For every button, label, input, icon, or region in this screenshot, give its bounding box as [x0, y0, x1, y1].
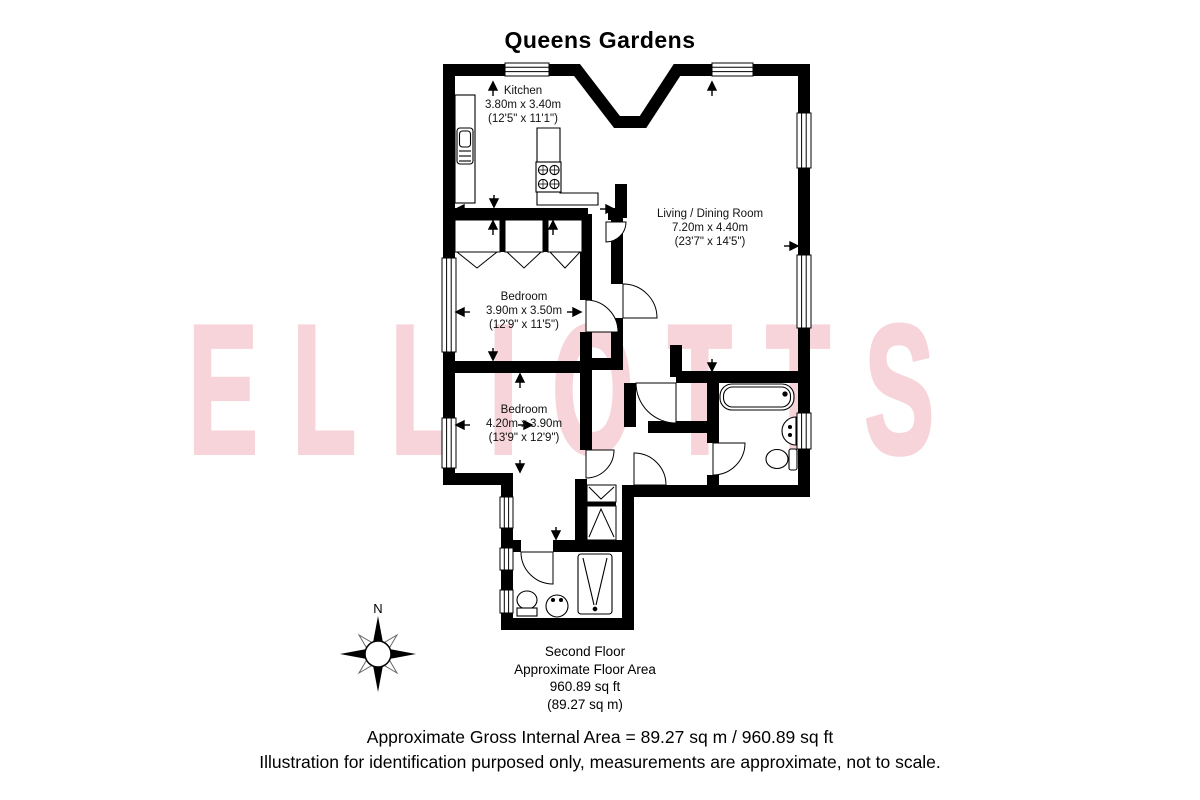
outer-wall	[449, 70, 804, 624]
floor-name: Second Floor	[465, 643, 705, 661]
cupboard-upper	[587, 485, 616, 502]
door-shower-room	[521, 552, 553, 584]
shower-toilet-base	[517, 608, 537, 616]
page-title: Queens Gardens	[0, 27, 1200, 54]
closet-stub-1	[500, 220, 505, 252]
floor-area-ft: 960.89 sq ft	[465, 678, 705, 696]
shower-drain	[593, 607, 597, 611]
shower-basin-tap	[560, 599, 563, 602]
floor-area-m: (89.27 sq m)	[465, 696, 705, 714]
closet-stub-2	[543, 220, 548, 252]
room-size-metric: 3.80m x 3.40m	[448, 98, 598, 112]
room-size-imperial: (23'7" x 14'5")	[620, 235, 800, 249]
compass-north-label: N	[362, 601, 394, 616]
basin-tap	[789, 426, 792, 429]
room-size-metric: 3.90m x 3.50m	[449, 304, 599, 318]
floorplan-page: ELLIOTTS	[0, 0, 1200, 800]
arrow-down	[489, 348, 497, 360]
door-entry-hall	[636, 383, 676, 423]
footer-disclaimer: Illustration for identification purposed…	[0, 752, 1200, 773]
room-size-imperial: (12'9" x 11'5")	[449, 318, 599, 332]
window-lobby-left-1	[500, 497, 513, 528]
door-bedroom2	[586, 450, 614, 478]
room-size-imperial: (13'9" x 12'9")	[449, 431, 599, 445]
window-living-right-1	[797, 113, 811, 168]
arrow-down	[490, 195, 498, 207]
window-kitchen-top	[505, 63, 549, 76]
kitchen-sink-bowl	[460, 131, 471, 147]
bedroom1-label: Bedroom 3.90m x 3.50m (12'9" x 11'5")	[449, 290, 599, 332]
door-bathroom	[713, 443, 745, 475]
room-name: Living / Dining Room	[620, 207, 800, 221]
window-living-top	[712, 63, 753, 76]
room-size-metric: 4.20m x 3.90m	[449, 417, 599, 431]
door-living	[623, 284, 657, 318]
shower-basin	[546, 595, 568, 617]
arrow-down	[708, 359, 716, 371]
closet-door-mark-2	[507, 252, 541, 268]
bathtub-tap	[783, 392, 787, 396]
bathroom-basin	[782, 417, 796, 445]
basin-tap	[789, 434, 792, 437]
shower-tray	[578, 554, 612, 614]
bedroom2-label: Bedroom 4.20m x 3.90m (13'9" x 12'9")	[449, 403, 599, 445]
compass-rose	[340, 616, 416, 692]
shower-toilet	[517, 591, 537, 609]
bathroom-toilet-tank	[789, 449, 797, 470]
room-name: Kitchen	[448, 84, 598, 98]
bathroom-toilet	[766, 450, 788, 469]
arrow-up	[708, 82, 716, 96]
shower-basin-tap	[552, 599, 555, 602]
window-lobby-left-3	[500, 590, 513, 613]
compass-center	[365, 641, 391, 667]
living-dining-label: Living / Dining Room 7.20m x 4.40m (23'7…	[620, 207, 800, 249]
kitchen-label: Kitchen 3.80m x 3.40m (12'5" x 11'1")	[448, 84, 598, 126]
floor-summary: Second Floor Approximate Floor Area 960.…	[465, 643, 705, 713]
closet-door-mark-1	[457, 252, 497, 268]
arrow-up	[516, 374, 524, 388]
room-size-imperial: (12'5" x 11'1")	[448, 112, 598, 126]
arrow-down	[552, 527, 560, 539]
bathtub-inner	[724, 387, 791, 407]
floor-area-label: Approximate Floor Area	[465, 661, 705, 679]
window-living-right-2	[797, 255, 811, 328]
room-name: Bedroom	[449, 290, 599, 304]
closet-2	[505, 220, 543, 252]
room-name: Bedroom	[449, 403, 599, 417]
room-size-metric: 7.20m x 4.40m	[620, 221, 800, 235]
window-lobby-left-2	[500, 548, 513, 570]
arrow-down	[516, 460, 524, 472]
door-passage	[634, 453, 666, 485]
walls	[449, 70, 804, 624]
window-bathroom-right	[797, 413, 811, 449]
footer-gross-area: Approximate Gross Internal Area = 89.27 …	[0, 727, 1200, 748]
closet-door-mark-3	[550, 252, 580, 268]
